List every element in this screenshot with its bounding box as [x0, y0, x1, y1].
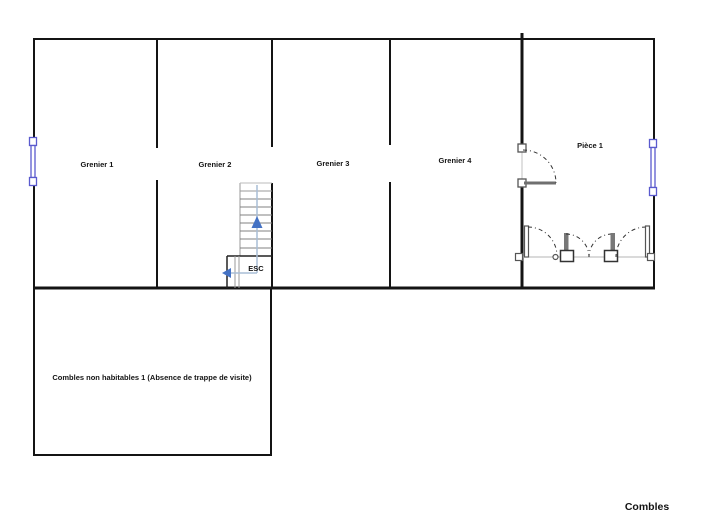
room-labels: Grenier 1 Grenier 2 Grenier 3 Grenier 4 …	[52, 141, 603, 382]
closet-doors	[516, 226, 655, 262]
window-end-square	[650, 188, 657, 196]
door-swing-icon	[616, 227, 646, 257]
window-end-square	[650, 140, 657, 148]
room-label-grenier-2: Grenier 2	[199, 160, 232, 169]
door-leaf	[525, 226, 529, 257]
door-swing-icon	[523, 150, 556, 183]
door-jamb-square	[516, 254, 523, 261]
door-jamb-square	[518, 144, 526, 152]
piece-1-door	[518, 144, 556, 187]
window-glazing	[31, 146, 35, 178]
staircase-icon	[222, 183, 272, 288]
room-label-grenier-1: Grenier 1	[81, 160, 114, 169]
door-jamb-square	[648, 254, 655, 261]
door-hinge-circle	[553, 255, 558, 260]
room-label-piece-1: Pièce 1	[577, 141, 603, 150]
stair-label: ESC	[248, 264, 264, 273]
floor-title: Combles	[625, 501, 670, 513]
door-leaf	[646, 226, 650, 257]
room-label-combles-non-habitables: Combles non habitables 1 (Absence de tra…	[52, 373, 252, 382]
room-label-grenier-4: Grenier 4	[439, 156, 473, 165]
door-jamb-square	[561, 251, 574, 262]
window-end-square	[30, 138, 37, 146]
window-right-icon	[650, 140, 657, 196]
door-swing-icon	[528, 227, 557, 256]
window-end-square	[30, 178, 37, 186]
floor-plan-canvas: Grenier 1 Grenier 2 Grenier 3 Grenier 4 …	[0, 0, 712, 526]
window-glazing	[651, 148, 655, 188]
window-left-icon	[30, 138, 37, 186]
annex-walls	[33, 288, 272, 455]
stair-direction-up-arrow-icon	[252, 216, 263, 228]
floor-plan-page: Grenier 1 Grenier 2 Grenier 3 Grenier 4 …	[0, 0, 712, 526]
room-label-grenier-3: Grenier 3	[317, 159, 350, 168]
